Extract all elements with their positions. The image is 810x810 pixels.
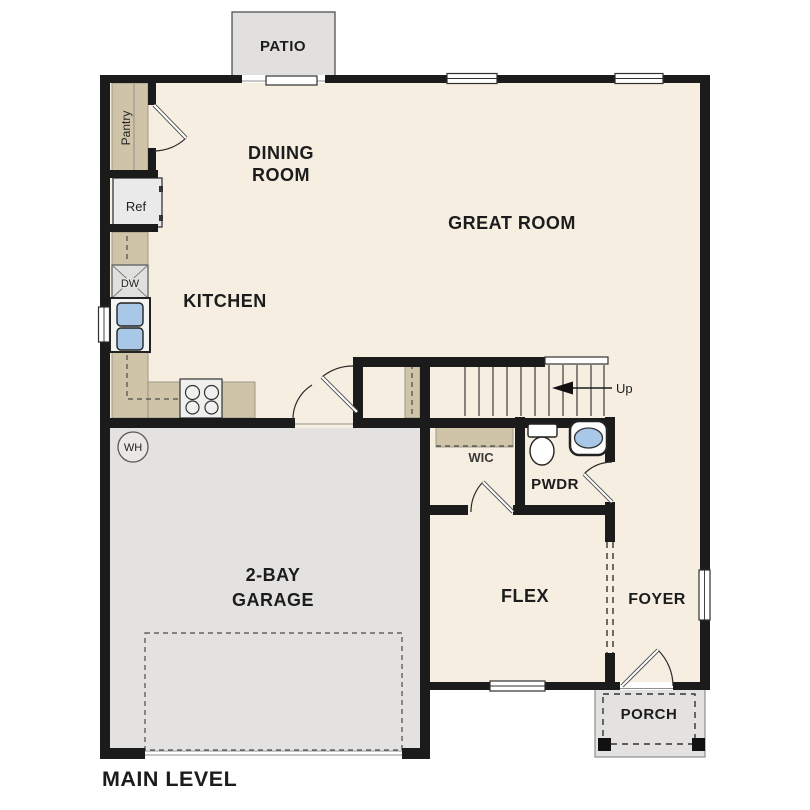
wall-kitchen-garage — [100, 418, 295, 428]
water-heater-label: WH — [124, 442, 142, 454]
stair-railing — [545, 357, 608, 364]
porch-label: PORCH — [621, 706, 678, 723]
patio-label: PATIO — [260, 38, 306, 55]
patio-sliding-door — [266, 76, 317, 85]
garage-label-line1: 2-BAY — [246, 565, 301, 585]
floor-plan-svg: WH Up PATIO DINING ROOM GREAT ROOM KITCH… — [0, 0, 810, 810]
wall-pantry-stub-top — [148, 83, 156, 105]
water-heater: WH — [118, 432, 148, 462]
wall-garage-bottom-right — [402, 748, 430, 759]
wall-below-ref — [110, 224, 158, 232]
wall-wic-flex-left — [428, 505, 468, 515]
wall-garage-right — [420, 357, 430, 757]
plan-title: MAIN LEVEL — [102, 767, 237, 791]
up-label: Up — [616, 381, 633, 396]
wall-flex-bottom-right — [545, 682, 620, 690]
flex-label: FLEX — [501, 586, 549, 606]
wall-hall-stub — [353, 357, 363, 428]
wic-label: WIC — [468, 450, 494, 465]
toilet-bowl-icon — [530, 437, 554, 465]
porch-post-left — [598, 738, 611, 751]
dw-label: DW — [121, 278, 140, 290]
garage-door-threshold-floor — [295, 418, 353, 428]
wall-pwdr-right-bottom — [605, 502, 615, 542]
foyer-label: FOYER — [628, 591, 686, 608]
dining-room-label-line2: ROOM — [252, 165, 310, 185]
floor-plan-page: WH Up PATIO DINING ROOM GREAT ROOM KITCH… — [0, 0, 810, 810]
refrigerator-handle-bottom — [159, 215, 163, 221]
wall-below-pantry — [110, 170, 158, 178]
dining-room-label-line1: DINING — [248, 143, 314, 163]
great-room-label: GREAT ROOM — [448, 213, 576, 233]
wall-wic-flex-right — [513, 505, 615, 515]
wall-wic-pwdr-divider — [515, 417, 525, 515]
wic-shelf — [436, 427, 513, 447]
wall-left-exterior — [100, 75, 110, 759]
porch-post-right — [692, 738, 705, 751]
wall-stairs-top — [353, 357, 545, 367]
wall-garage-bottom-left — [100, 748, 145, 759]
wall-flex-bottom-left — [420, 682, 490, 690]
pantry-label: Pantry — [119, 111, 133, 146]
counter-upper-strip — [112, 232, 148, 265]
pwdr-label: PWDR — [531, 476, 579, 493]
toilet-tank-icon — [528, 424, 557, 437]
garage-floor-area — [110, 428, 420, 750]
counter-left-strip — [112, 352, 148, 418]
kitchen-label: KITCHEN — [183, 291, 267, 311]
sink-basin-top — [117, 303, 143, 326]
vanity-basin-icon — [575, 428, 603, 448]
sink-basin-bottom — [117, 328, 143, 350]
garage-label-line2: GARAGE — [232, 590, 314, 610]
refrigerator-handle-top — [159, 186, 163, 192]
wall-foyer-bottom — [673, 682, 710, 690]
ref-label: Ref — [126, 199, 147, 214]
